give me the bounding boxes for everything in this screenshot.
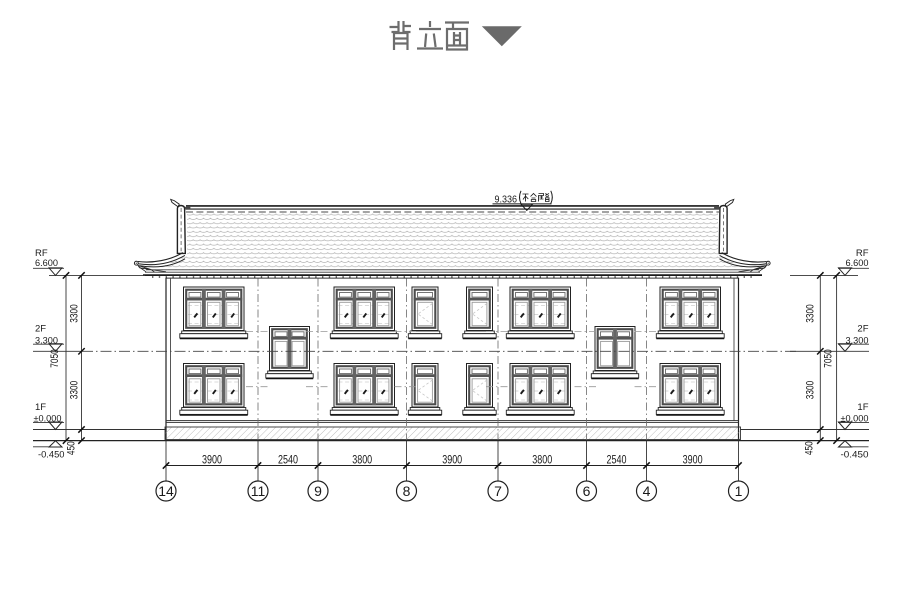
svg-text:3300: 3300 [805, 304, 817, 322]
svg-text:2F: 2F [857, 324, 868, 335]
svg-text:8: 8 [403, 483, 411, 499]
svg-text:6.600: 6.600 [846, 258, 869, 269]
svg-text:3300: 3300 [805, 381, 817, 399]
svg-text:1: 1 [735, 483, 743, 499]
svg-text:450: 450 [804, 441, 816, 455]
svg-text:±0.000: ±0.000 [841, 414, 869, 425]
svg-text:7: 7 [494, 483, 502, 499]
svg-text:3800: 3800 [532, 452, 552, 466]
svg-text:450: 450 [66, 441, 78, 455]
svg-text:2F: 2F [35, 324, 46, 335]
svg-text:4: 4 [643, 483, 651, 499]
svg-text:6.600: 6.600 [35, 258, 58, 269]
svg-text:1F: 1F [857, 402, 868, 413]
svg-text:-0.450: -0.450 [841, 450, 869, 461]
svg-text:3800: 3800 [352, 452, 372, 466]
svg-text:2540: 2540 [607, 452, 627, 466]
svg-text:±0.000: ±0.000 [34, 414, 62, 425]
svg-text:3900: 3900 [683, 452, 703, 466]
svg-text:7050: 7050 [823, 349, 835, 367]
svg-text:2540: 2540 [278, 452, 298, 466]
svg-text:14: 14 [158, 483, 174, 499]
svg-text:3.300: 3.300 [35, 335, 58, 346]
svg-text:7050: 7050 [49, 349, 61, 367]
svg-text:3.300: 3.300 [846, 335, 869, 346]
svg-text:9: 9 [314, 483, 322, 499]
svg-text:3300: 3300 [69, 381, 81, 399]
svg-text:-0.450: -0.450 [38, 450, 65, 461]
svg-text:11: 11 [251, 483, 266, 499]
svg-text:3900: 3900 [442, 452, 462, 466]
svg-text:1F: 1F [35, 402, 46, 413]
svg-text:3300: 3300 [69, 304, 81, 322]
svg-text:6: 6 [583, 483, 591, 499]
svg-text:3900: 3900 [202, 452, 222, 466]
